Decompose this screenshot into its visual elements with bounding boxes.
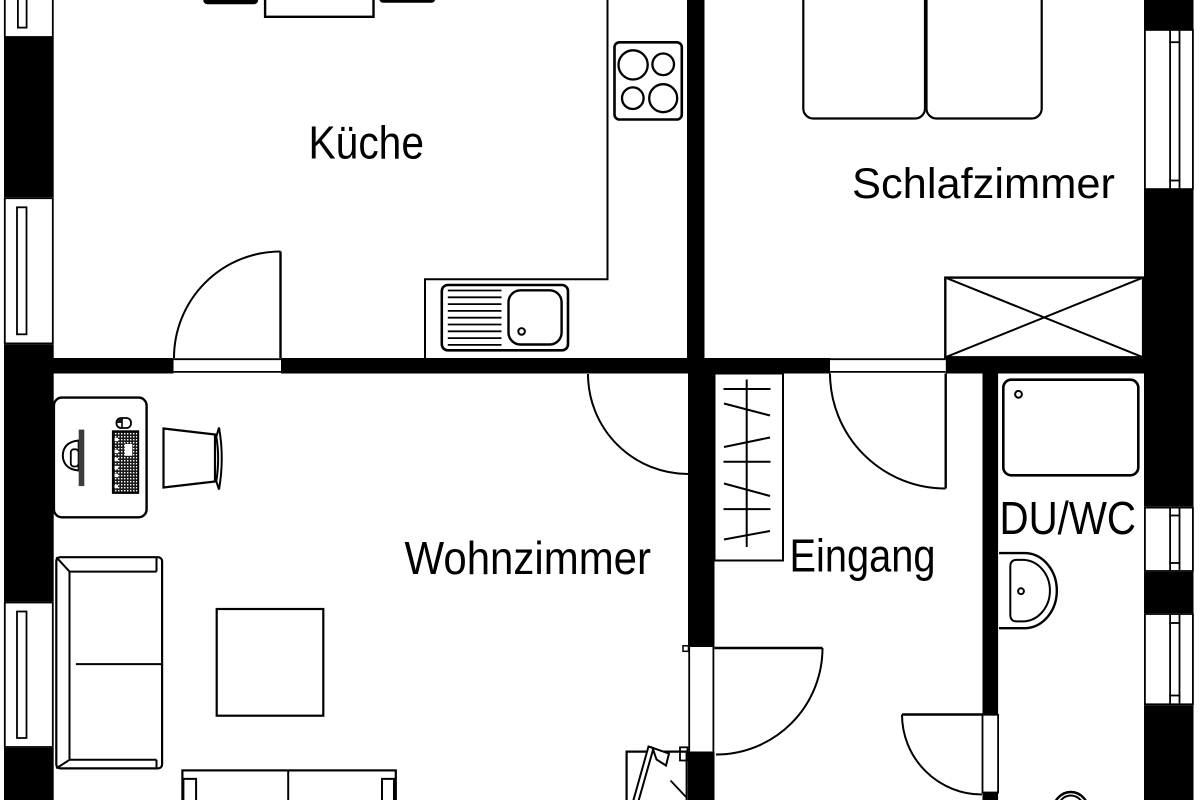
svg-text:DU/WC: DU/WC: [1000, 492, 1137, 544]
svg-text:Wohnzimmer: Wohnzimmer: [405, 532, 652, 584]
svg-text:Schlafzimmer: Schlafzimmer: [852, 161, 1115, 208]
svg-text:Küche: Küche: [309, 117, 425, 169]
svg-text:Eingang: Eingang: [790, 529, 936, 581]
